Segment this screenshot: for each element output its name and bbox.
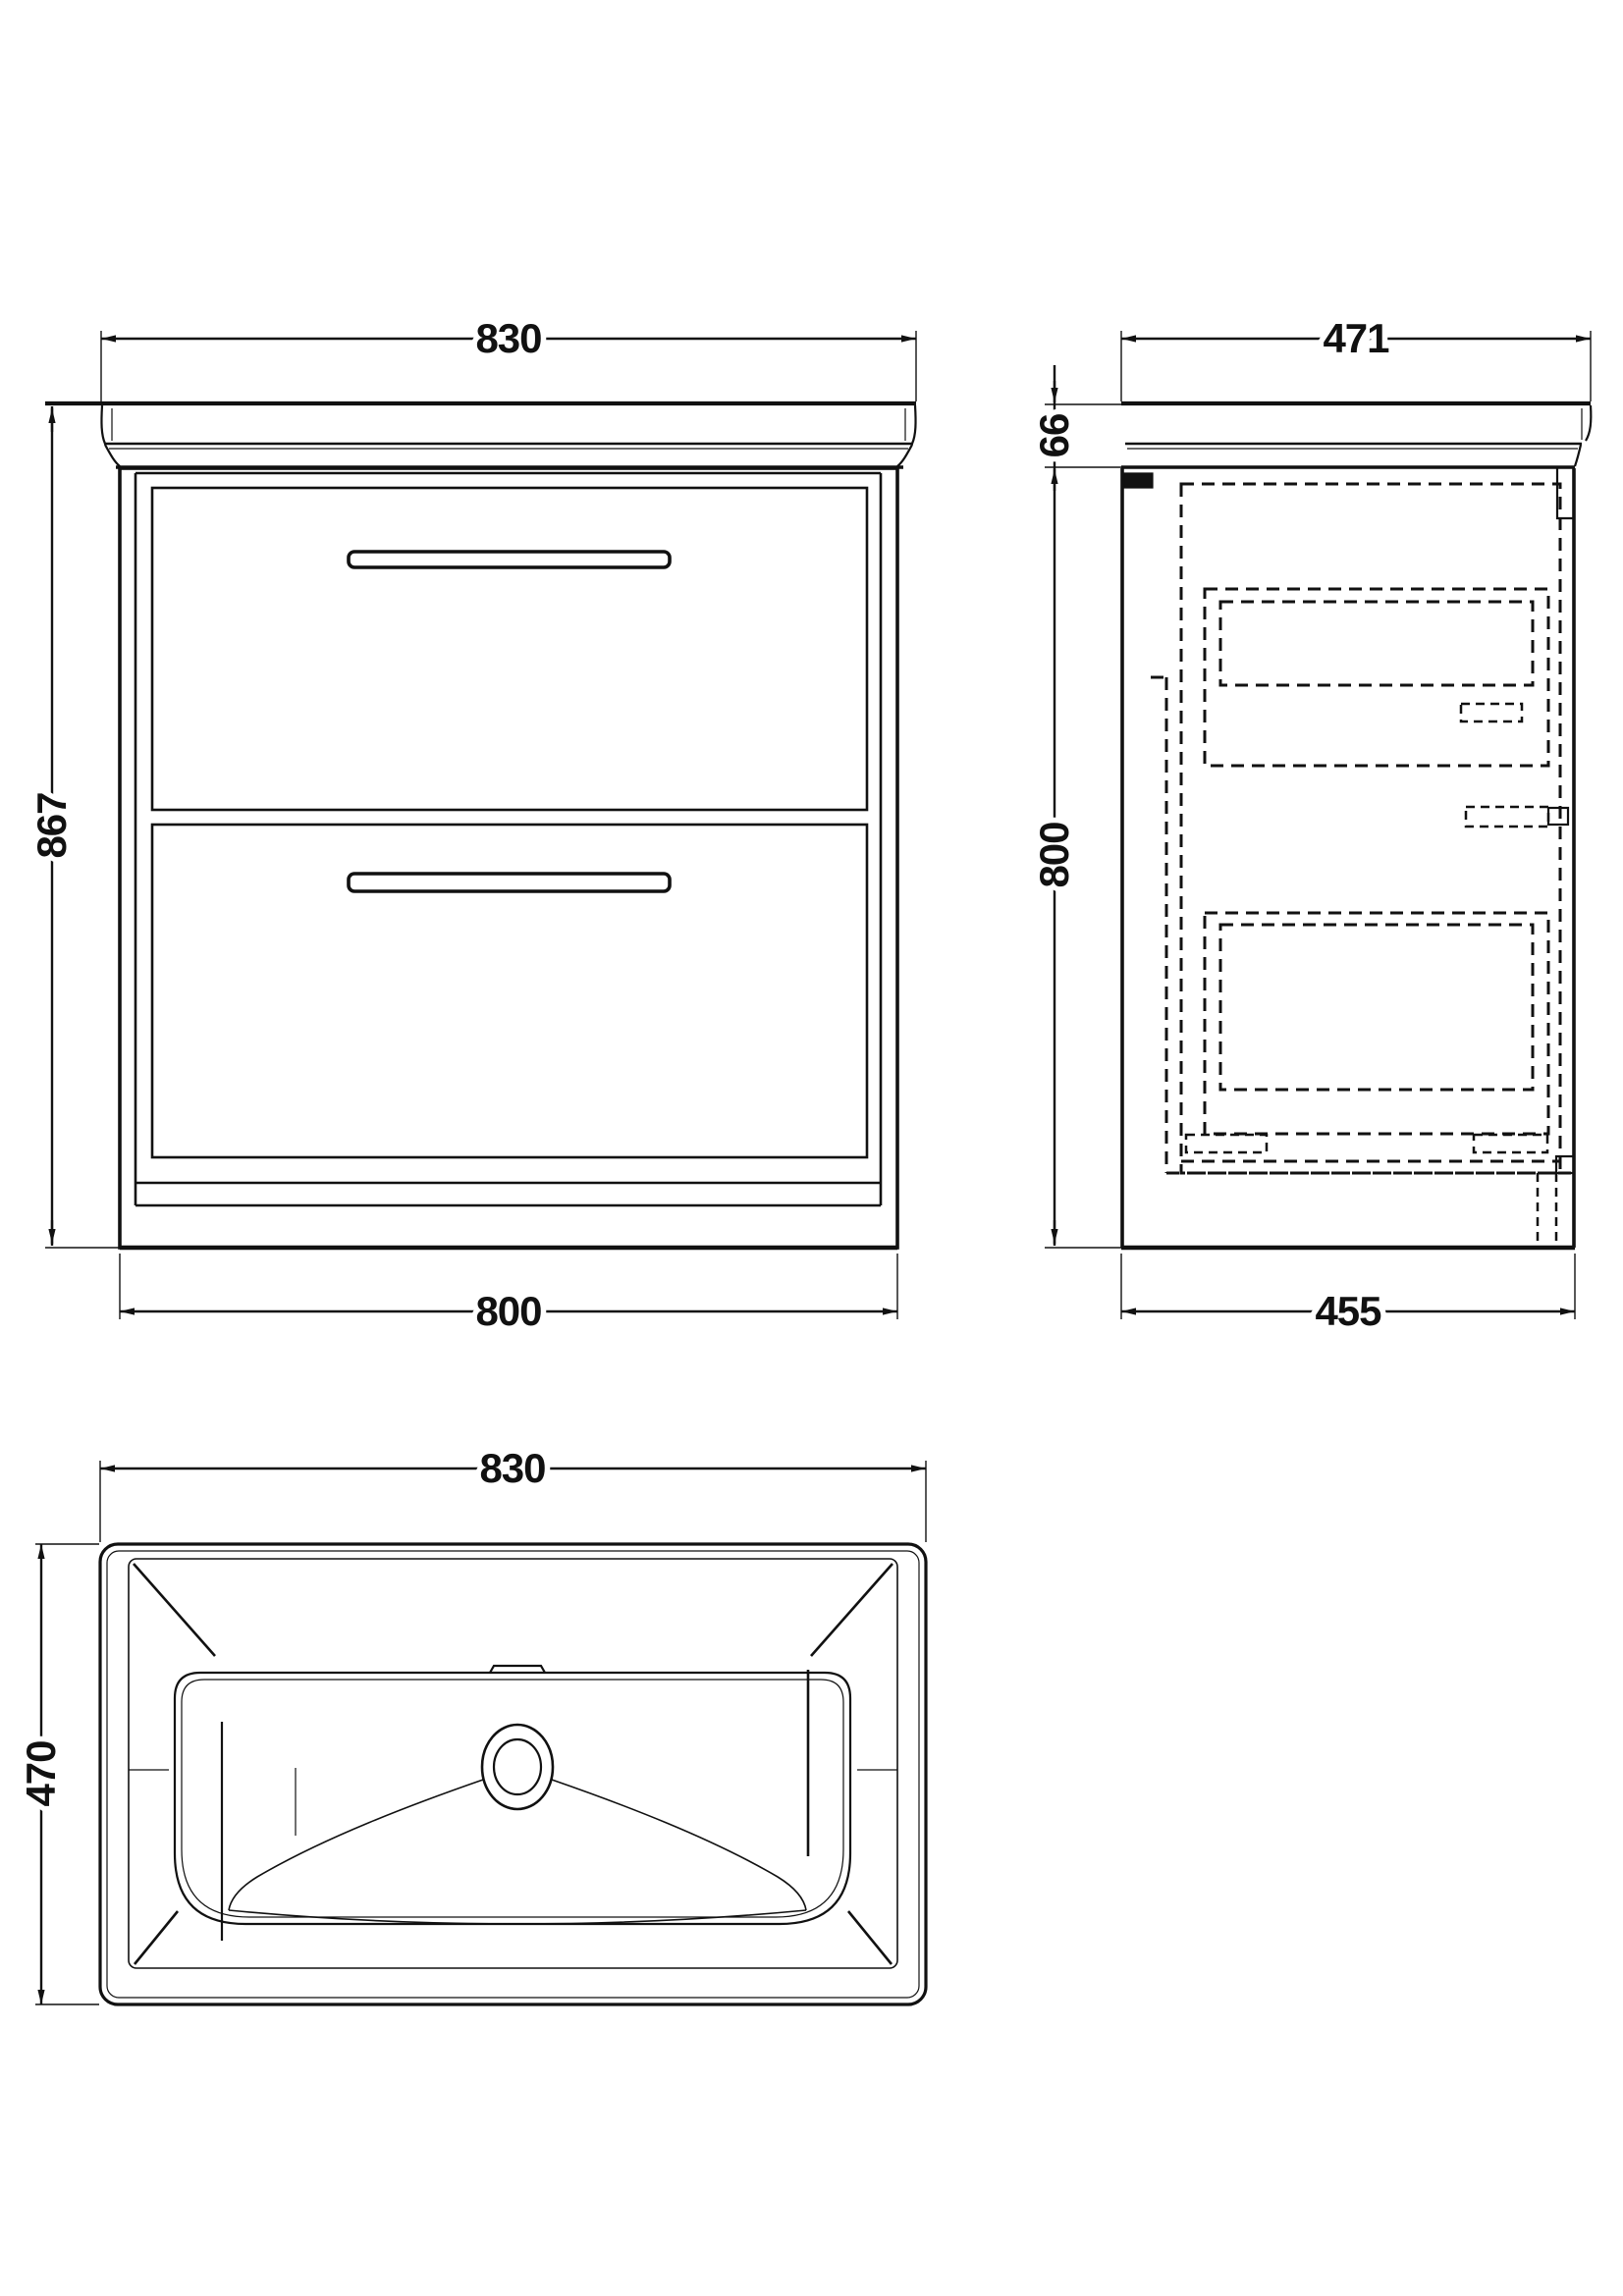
wall-fixing-bracket (1124, 473, 1153, 488)
dim-label-front-cabinet-width: 800 (475, 1288, 541, 1334)
tap-hole-inner (494, 1739, 541, 1794)
dim-label-cabinet-height: 800 (1031, 822, 1077, 887)
dim-label-front-height: 867 (28, 792, 75, 858)
dim-plan-depth: 470 (18, 1544, 99, 2004)
basin-outer-rim-inner-line (107, 1551, 919, 1998)
mid-runner (1466, 807, 1548, 827)
lower-drawer-box-outer (1205, 913, 1548, 1134)
bracket-solid (1125, 474, 1152, 487)
worktop-back-edge (1586, 405, 1591, 441)
upper-drawer-box-outer (1205, 589, 1548, 766)
corner-slope-bottom-left (135, 1911, 178, 1964)
lower-glide-back (1474, 1135, 1547, 1152)
bowl-inner-edge (182, 1680, 843, 1917)
moulding-back-edge (1575, 445, 1581, 466)
dim-front-worktop-width: 830 (101, 315, 916, 401)
dim-label-plan-depth: 470 (18, 1740, 64, 1806)
basin-inner-rim (129, 1559, 897, 1968)
dim-label-side-depth: 471 (1323, 315, 1389, 361)
dim-side-heights: 66 800 (1031, 365, 1121, 1248)
dim-side-worktop-depth: 471 (1121, 315, 1591, 401)
side-cabinet (1121, 468, 1575, 1248)
dim-front-overall-height: 867 (28, 406, 75, 1246)
basin-plan-view: 830 470 (18, 1445, 926, 2004)
side-hidden-structure (1151, 484, 1575, 1243)
moulding-right-edge (897, 445, 912, 466)
corner-slope-top-right (811, 1564, 893, 1656)
technical-drawing-canvas: 830 (0, 0, 1623, 2296)
basin-outline (100, 1544, 926, 2004)
corner-slope-top-left (134, 1564, 215, 1656)
corner-slope-bottom-right (848, 1911, 892, 1964)
dim-front-cabinet-width: 800 (120, 1254, 897, 1334)
dim-label-front-width: 830 (475, 315, 541, 361)
dim-label-plan-width: 830 (479, 1445, 545, 1491)
side-elevation-view: 471 66 800 (1031, 315, 1591, 1334)
dim-side-cabinet-depth: 455 (1121, 1254, 1575, 1334)
internal-cavity-dashed (1181, 484, 1560, 1173)
front-worktop (45, 403, 916, 467)
bowl-slope-left (229, 1780, 483, 1910)
upper-drawer-runner (1461, 704, 1522, 721)
dim-label-side-cabinet-depth: 455 (1315, 1288, 1381, 1334)
bowl-outer-edge (175, 1673, 850, 1924)
lower-drawer-box-inner (1220, 925, 1533, 1090)
moulding-left-edge (105, 445, 120, 466)
drawing-sheet: 830 (0, 0, 1623, 2296)
drawer-front-upper (152, 488, 867, 810)
drawer-handle-upper (349, 552, 670, 567)
drawer-handle-lower (349, 874, 670, 891)
basin-outer-rim (100, 1544, 926, 2004)
dim-label-worktop-height: 66 (1031, 414, 1077, 458)
bowl-slope-right (552, 1780, 806, 1910)
tap-hole-outer (482, 1725, 553, 1809)
front-cabinet (120, 468, 897, 1248)
worktop-left-edge (101, 405, 105, 444)
mid-runner-bracket (1548, 808, 1568, 825)
basin-bowl (129, 1666, 897, 1941)
cabinet-outline (120, 468, 897, 1248)
back-rail-step (1557, 468, 1574, 518)
lower-glide-front (1186, 1135, 1267, 1152)
worktop-right-edge (912, 405, 916, 444)
dim-plan-width: 830 (100, 1445, 926, 1542)
upper-drawer-box-inner (1220, 602, 1533, 685)
front-elevation-view: 830 (28, 315, 916, 1334)
side-worktop (1045, 403, 1591, 467)
